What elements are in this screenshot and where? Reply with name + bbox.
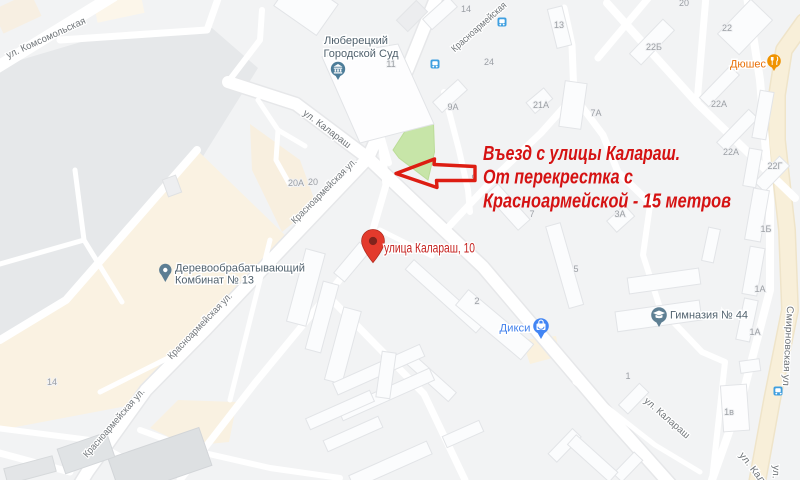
svg-text:24: 24 <box>484 57 494 67</box>
svg-text:Гимназия № 44: Гимназия № 44 <box>670 310 748 322</box>
svg-text:Въезд с улицы Калараш.: Въезд с улицы Калараш. <box>483 142 680 165</box>
svg-text:14: 14 <box>461 4 471 14</box>
svg-text:5: 5 <box>573 264 578 274</box>
svg-text:20А: 20А <box>288 178 304 188</box>
svg-text:1А: 1А <box>754 284 765 294</box>
svg-text:Люберецкий: Люберецкий <box>324 35 388 47</box>
svg-text:9А: 9А <box>447 102 458 112</box>
svg-text:22Г: 22Г <box>768 161 783 171</box>
svg-text:7А: 7А <box>590 108 601 118</box>
svg-text:22А: 22А <box>723 147 739 157</box>
svg-text:1: 1 <box>625 371 630 381</box>
svg-text:улица Калараш, 10: улица Калараш, 10 <box>384 240 475 256</box>
svg-text:Деревообрабатывающий: Деревообрабатывающий <box>175 263 305 275</box>
svg-text:Дюшес: Дюшес <box>730 59 766 71</box>
svg-text:11: 11 <box>386 59 395 69</box>
svg-text:20: 20 <box>308 177 318 187</box>
svg-text:2: 2 <box>474 296 479 306</box>
svg-text:1в: 1в <box>724 407 734 417</box>
svg-text:14: 14 <box>47 377 57 387</box>
svg-text:ул.: ул. <box>770 465 782 479</box>
svg-text:1А: 1А <box>749 327 760 337</box>
svg-text:От перекрестка с: От перекрестка с <box>483 166 633 189</box>
svg-text:22: 22 <box>722 23 732 33</box>
svg-text:21А: 21А <box>533 100 549 110</box>
svg-text:22А: 22А <box>711 99 727 109</box>
svg-text:20: 20 <box>679 0 689 8</box>
svg-text:13: 13 <box>554 20 564 30</box>
svg-text:1Б: 1Б <box>761 224 772 234</box>
svg-text:22Б: 22Б <box>646 42 662 52</box>
svg-text:Дикси: Дикси <box>500 323 531 335</box>
svg-text:Комбинат № 13: Комбинат № 13 <box>175 275 254 287</box>
svg-text:Красноармейской - 15 метров: Красноармейской - 15 метров <box>483 190 731 213</box>
